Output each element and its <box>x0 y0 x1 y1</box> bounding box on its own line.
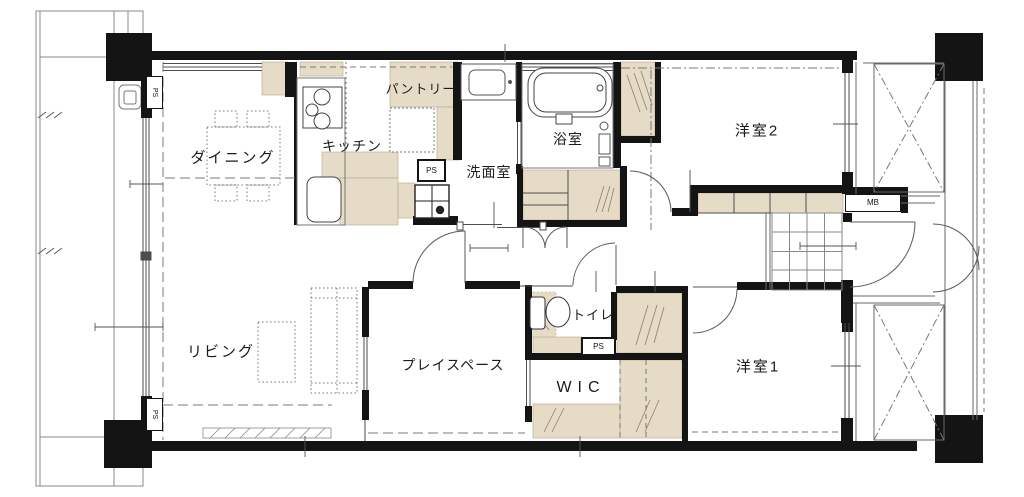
kitchen-stove-icon <box>303 87 342 129</box>
pipe-space-box-toilet: PS <box>581 337 616 356</box>
room-label-toilet: トイレ <box>572 305 614 324</box>
pipe-space-box-top-left: PS <box>146 76 163 109</box>
refrigerator-space <box>390 108 434 152</box>
room-label-wic: WIC <box>556 379 605 397</box>
room-label-bedroom1: 洋室1 <box>736 356 780 377</box>
room-label-bathroom: 浴室 <box>553 129 583 149</box>
balcony-tap-icon <box>119 85 141 109</box>
washing-machine-icon <box>415 185 449 218</box>
vanity-sink-icon <box>461 64 516 100</box>
pipe-space-label: PS <box>593 343 604 351</box>
kitchen-sink-icon <box>307 177 341 222</box>
balcony-outline <box>36 11 143 486</box>
room-label-bedroom2: 洋室2 <box>735 120 779 141</box>
room-label-living: リビング <box>187 341 255 362</box>
floor-plan: ダイニング キッチン パントリー 洗面室 浴室 洋室2 リビング プレイスペース… <box>0 0 1024 497</box>
room-label-kitchen: キッチン <box>322 136 382 156</box>
low-window-hatch <box>203 428 331 438</box>
pipe-space-box-bottom-left: PS <box>146 398 163 431</box>
pipe-space-box-kitchen: PS <box>417 159 446 182</box>
pipe-space-label: PS <box>426 167 437 175</box>
meter-box: MB <box>845 194 901 212</box>
storage-fills <box>262 62 843 438</box>
room-label-playspace: プレイスペース <box>402 355 505 375</box>
entry-zone <box>766 62 977 441</box>
meter-box-label: MB <box>867 199 879 207</box>
shower-fittings-icon <box>599 122 610 166</box>
pipe-space-label: PS <box>151 410 158 419</box>
sofa-icon <box>311 288 357 393</box>
room-label-washroom: 洗面室 <box>467 162 512 182</box>
bathtub-icon <box>528 68 612 124</box>
room-label-pantry: パントリー <box>386 79 457 98</box>
room-label-dining: ダイニング <box>190 147 275 168</box>
coffee-table-icon <box>258 322 295 382</box>
pipe-space-label: PS <box>151 88 158 97</box>
